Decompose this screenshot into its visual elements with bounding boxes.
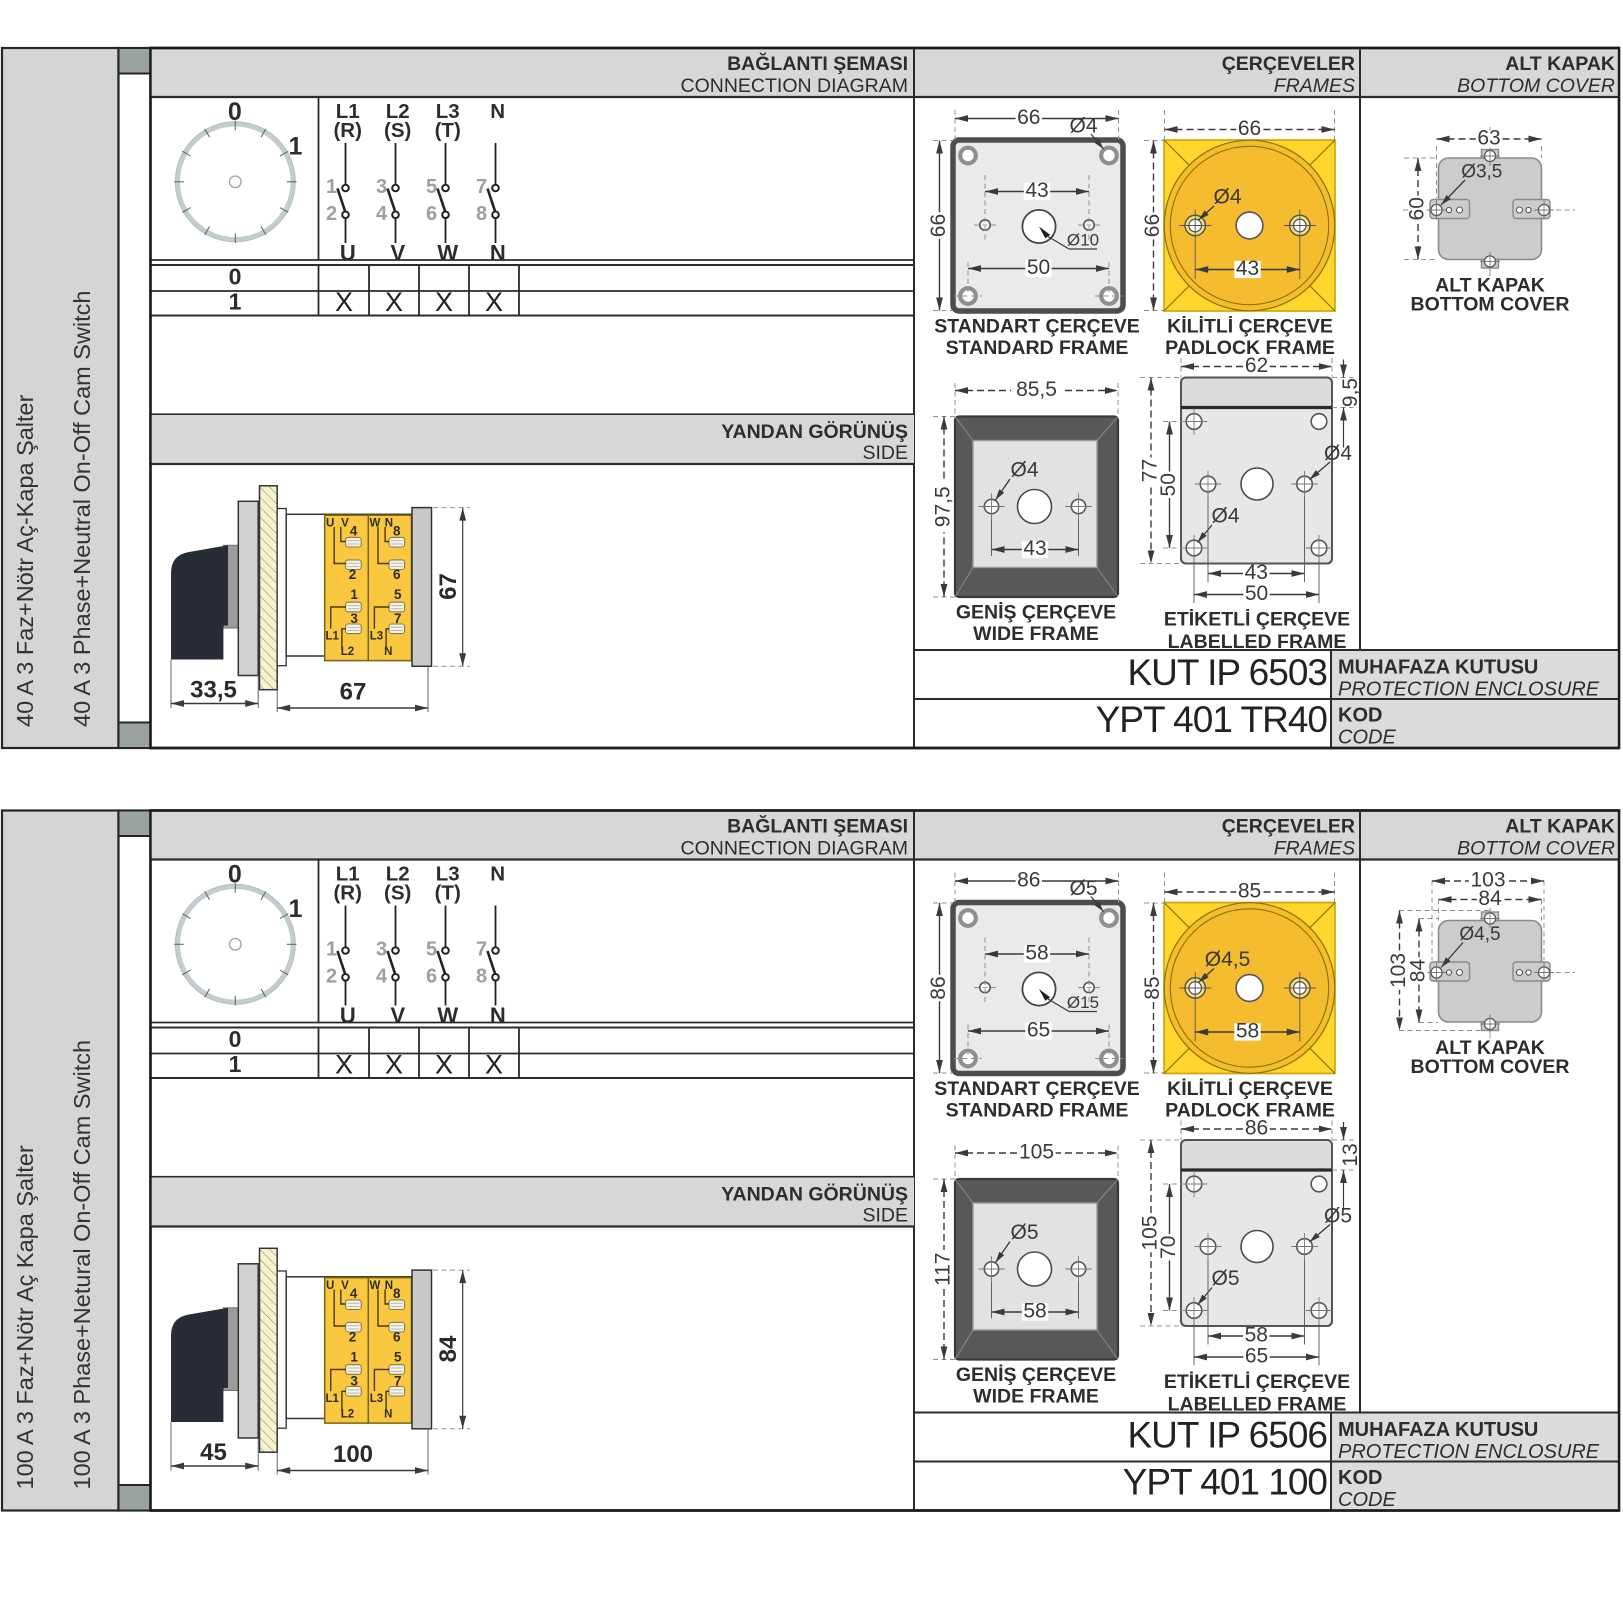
svg-text:KİLİTLİ ÇERÇEVE: KİLİTLİ ÇERÇEVE [1167,315,1333,338]
svg-text:BOTTOM COVER: BOTTOM COVER [1457,838,1615,860]
svg-text:Ø3,5: Ø3,5 [1461,162,1502,183]
svg-text:0: 0 [229,1026,242,1052]
svg-text:58: 58 [1023,1300,1046,1323]
svg-text:SIDE: SIDE [862,1205,908,1227]
svg-text:58: 58 [1025,942,1048,965]
svg-text:N: N [385,517,393,529]
svg-text:8: 8 [476,203,487,225]
svg-text:YPT 401 100: YPT 401 100 [1123,1461,1328,1502]
svg-text:X: X [335,1050,353,1080]
svg-text:8: 8 [393,524,401,539]
svg-text:X: X [385,1050,403,1080]
svg-text:2: 2 [326,203,337,225]
svg-text:WIDE FRAME: WIDE FRAME [973,1386,1099,1408]
svg-text:(R): (R) [333,881,361,904]
svg-text:62: 62 [1245,354,1268,377]
svg-text:MUHAFAZA KUTUSU: MUHAFAZA KUTUSU [1338,1419,1538,1441]
svg-text:1: 1 [326,176,337,198]
svg-text:KOD: KOD [1338,1467,1382,1489]
svg-text:65: 65 [1245,1345,1268,1368]
svg-text:STANDART ÇERÇEVE: STANDART ÇERÇEVE [934,316,1139,338]
svg-text:1: 1 [326,938,337,960]
svg-text:6: 6 [393,1330,401,1345]
svg-text:84: 84 [1478,887,1502,910]
svg-text:5: 5 [394,1350,402,1365]
svg-text:Ø4: Ø4 [1010,459,1038,482]
svg-text:X: X [435,287,453,317]
svg-text:100 A 3 Faz+Nötr Aç Kapa Şalte: 100 A 3 Faz+Nötr Aç Kapa Şalter [12,1145,38,1489]
svg-text:Ø5: Ø5 [1211,1267,1239,1290]
svg-text:4: 4 [350,524,358,539]
svg-text:BAĞLANTI ŞEMASI: BAĞLANTI ŞEMASI [727,52,908,75]
svg-text:(T): (T) [435,119,461,142]
svg-text:N: N [490,1003,506,1028]
svg-text:Ø4: Ø4 [1069,115,1097,138]
svg-text:43: 43 [1025,179,1048,202]
svg-text:65: 65 [1027,1019,1050,1042]
svg-text:CONNECTION DIAGRAM: CONNECTION DIAGRAM [680,838,908,860]
svg-text:KUT IP 6506: KUT IP 6506 [1128,1414,1328,1455]
svg-text:43: 43 [1023,537,1046,560]
svg-text:L1: L1 [325,1393,339,1405]
svg-text:5: 5 [394,587,402,602]
svg-text:50: 50 [1157,473,1180,496]
svg-text:7: 7 [394,611,402,626]
svg-text:U: U [326,1280,334,1292]
svg-text:66: 66 [927,214,950,237]
svg-text:SIDE: SIDE [862,442,908,464]
svg-text:L2: L2 [341,646,354,658]
svg-text:WIDE FRAME: WIDE FRAME [973,623,1099,645]
svg-text:Ø4: Ø4 [1211,505,1239,528]
svg-text:W: W [369,1280,380,1292]
svg-text:N: N [385,1280,393,1292]
svg-text:85: 85 [1238,880,1261,903]
svg-text:85: 85 [1141,976,1164,999]
svg-text:Ø4: Ø4 [1213,186,1241,209]
svg-text:ETİKETLİ ÇERÇEVE: ETİKETLİ ÇERÇEVE [1164,1370,1350,1393]
svg-text:1: 1 [289,895,303,923]
svg-text:V: V [390,1003,405,1028]
svg-text:60: 60 [1406,197,1429,220]
svg-text:V: V [341,1280,349,1292]
svg-text:9,5: 9,5 [1339,378,1362,407]
svg-text:N: N [384,1409,392,1421]
svg-text:PROTECTION ENCLOSURE: PROTECTION ENCLOSURE [1338,1441,1600,1463]
svg-text:GENİŞ ÇERÇEVE: GENİŞ ÇERÇEVE [956,1363,1116,1386]
svg-text:2: 2 [349,567,357,582]
svg-text:117: 117 [932,1253,955,1286]
svg-text:N: N [490,100,505,123]
svg-text:ALT KAPAK: ALT KAPAK [1505,53,1615,75]
svg-text:KUT IP 6503: KUT IP 6503 [1128,652,1328,693]
svg-text:3: 3 [376,938,387,960]
svg-text:YANDAN GÖRÜNÜŞ: YANDAN GÖRÜNÜŞ [721,420,908,443]
svg-text:33,5: 33,5 [190,676,237,703]
svg-text:N: N [384,646,392,658]
svg-text:Ø15: Ø15 [1067,993,1099,1012]
svg-text:CODE: CODE [1338,1489,1396,1511]
svg-text:Ø4,5: Ø4,5 [1205,948,1251,971]
svg-text:0: 0 [229,264,242,290]
svg-text:3: 3 [376,176,387,198]
svg-text:L3: L3 [370,1393,383,1405]
svg-text:X: X [435,1050,453,1080]
svg-text:U: U [326,517,334,529]
svg-text:Ø5: Ø5 [1324,1205,1352,1228]
svg-text:L2: L2 [341,1409,354,1421]
svg-text:3: 3 [350,611,358,626]
svg-text:1: 1 [289,133,303,161]
svg-text:BOTTOM COVER: BOTTOM COVER [1411,294,1570,316]
svg-text:6: 6 [426,965,437,987]
svg-text:5: 5 [426,176,437,198]
svg-text:Ø5: Ø5 [1010,1221,1038,1244]
svg-text:W: W [437,1003,458,1028]
svg-text:Ø4,5: Ø4,5 [1459,924,1500,945]
svg-text:Ø4: Ø4 [1324,442,1352,465]
svg-text:1: 1 [350,587,358,602]
svg-text:N: N [490,862,505,885]
svg-text:V: V [341,517,349,529]
svg-text:1: 1 [350,1350,358,1365]
svg-text:6: 6 [426,203,437,225]
svg-text:84: 84 [1407,959,1430,983]
svg-text:ALT KAPAK: ALT KAPAK [1505,816,1615,838]
svg-text:BOTTOM COVER: BOTTOM COVER [1411,1056,1570,1078]
svg-text:58: 58 [1245,1324,1268,1347]
svg-text:97,5: 97,5 [932,486,955,527]
svg-text:X: X [335,287,353,317]
svg-text:4: 4 [350,1286,358,1301]
svg-text:YPT 401 TR40: YPT 401 TR40 [1096,699,1328,740]
svg-text:67: 67 [340,678,367,705]
svg-text:X: X [485,1050,503,1080]
svg-text:58: 58 [1236,1020,1259,1043]
svg-text:40 A 3 Faz+Nötr Aç-Kapa Şalter: 40 A 3 Faz+Nötr Aç-Kapa Şalter [12,394,38,727]
svg-text:7: 7 [394,1373,402,1388]
svg-text:GENİŞ ÇERÇEVE: GENİŞ ÇERÇEVE [956,601,1116,624]
svg-text:Ø10: Ø10 [1067,230,1099,249]
svg-text:100: 100 [333,1441,373,1468]
svg-text:W: W [369,517,380,529]
svg-text:X: X [385,287,403,317]
svg-text:1: 1 [229,289,242,315]
svg-text:1: 1 [229,1051,242,1077]
svg-text:BAĞLANTI ŞEMASI: BAĞLANTI ŞEMASI [727,815,908,838]
svg-text:X: X [485,287,503,317]
svg-text:0: 0 [228,98,242,126]
svg-text:ETİKETLİ ÇERÇEVE: ETİKETLİ ÇERÇEVE [1164,608,1350,631]
svg-text:50: 50 [1245,582,1268,605]
svg-text:66: 66 [1017,106,1040,129]
svg-text:85,5: 85,5 [1016,378,1057,401]
svg-text:ÇERÇEVELER: ÇERÇEVELER [1222,816,1355,838]
svg-text:43: 43 [1245,561,1268,584]
svg-text:MUHAFAZA KUTUSU: MUHAFAZA KUTUSU [1338,656,1538,678]
svg-text:45: 45 [200,1439,227,1466]
svg-text:(S): (S) [384,119,411,142]
svg-text:PROTECTION ENCLOSURE: PROTECTION ENCLOSURE [1338,678,1600,700]
svg-text:5: 5 [426,938,437,960]
svg-text:STANDARD FRAME: STANDARD FRAME [946,337,1129,359]
svg-text:8: 8 [476,965,487,987]
svg-text:43: 43 [1236,257,1259,280]
svg-text:KİLİTLİ ÇERÇEVE: KİLİTLİ ÇERÇEVE [1167,1077,1333,1100]
svg-text:66: 66 [1141,214,1164,237]
svg-text:66: 66 [1238,117,1261,140]
svg-text:8: 8 [393,1286,401,1301]
svg-text:3: 3 [350,1373,358,1388]
svg-text:FRAMES: FRAMES [1274,838,1355,860]
svg-text:100 A 3 Phase+Netural On-Off C: 100 A 3 Phase+Netural On-Off Cam Switch [69,1040,95,1490]
svg-text:4: 4 [376,965,388,987]
svg-text:(S): (S) [384,881,411,904]
svg-text:7: 7 [476,938,487,960]
svg-text:STANDARD FRAME: STANDARD FRAME [946,1100,1129,1122]
svg-text:6: 6 [393,567,401,582]
svg-text:40 A 3 Phase+Neutral On-Off Ca: 40 A 3 Phase+Neutral On-Off Cam Switch [69,291,95,728]
svg-text:KOD: KOD [1338,704,1382,726]
svg-text:FRAMES: FRAMES [1274,75,1355,97]
svg-text:2: 2 [349,1330,357,1345]
svg-text:(R): (R) [333,119,361,142]
svg-text:V: V [390,240,405,265]
svg-text:CONNECTION DIAGRAM: CONNECTION DIAGRAM [680,75,908,97]
svg-text:84: 84 [435,1335,462,1362]
svg-text:U: U [340,240,356,265]
svg-text:13: 13 [1339,1143,1362,1166]
svg-text:4: 4 [376,203,388,225]
svg-text:67: 67 [435,573,462,600]
svg-text:86: 86 [1245,1117,1268,1140]
svg-text:N: N [490,240,506,265]
svg-text:7: 7 [476,176,487,198]
svg-text:105: 105 [1019,1141,1054,1164]
svg-text:2: 2 [326,965,337,987]
svg-text:STANDART ÇERÇEVE: STANDART ÇERÇEVE [934,1078,1139,1100]
svg-text:(T): (T) [435,881,461,904]
svg-text:63: 63 [1477,127,1500,150]
svg-text:ÇERÇEVELER: ÇERÇEVELER [1222,53,1355,75]
svg-text:L3: L3 [370,631,383,643]
svg-text:W: W [437,240,458,265]
svg-text:Ø5: Ø5 [1069,877,1097,900]
svg-text:YANDAN GÖRÜNÜŞ: YANDAN GÖRÜNÜŞ [721,1183,908,1206]
svg-text:0: 0 [228,861,242,889]
svg-text:70: 70 [1157,1236,1180,1259]
svg-text:L1: L1 [325,631,339,643]
svg-text:86: 86 [1017,869,1040,892]
svg-text:CODE: CODE [1338,726,1396,748]
svg-text:BOTTOM COVER: BOTTOM COVER [1457,75,1615,97]
svg-text:86: 86 [927,976,950,999]
svg-text:50: 50 [1027,256,1050,279]
svg-text:U: U [340,1003,356,1028]
